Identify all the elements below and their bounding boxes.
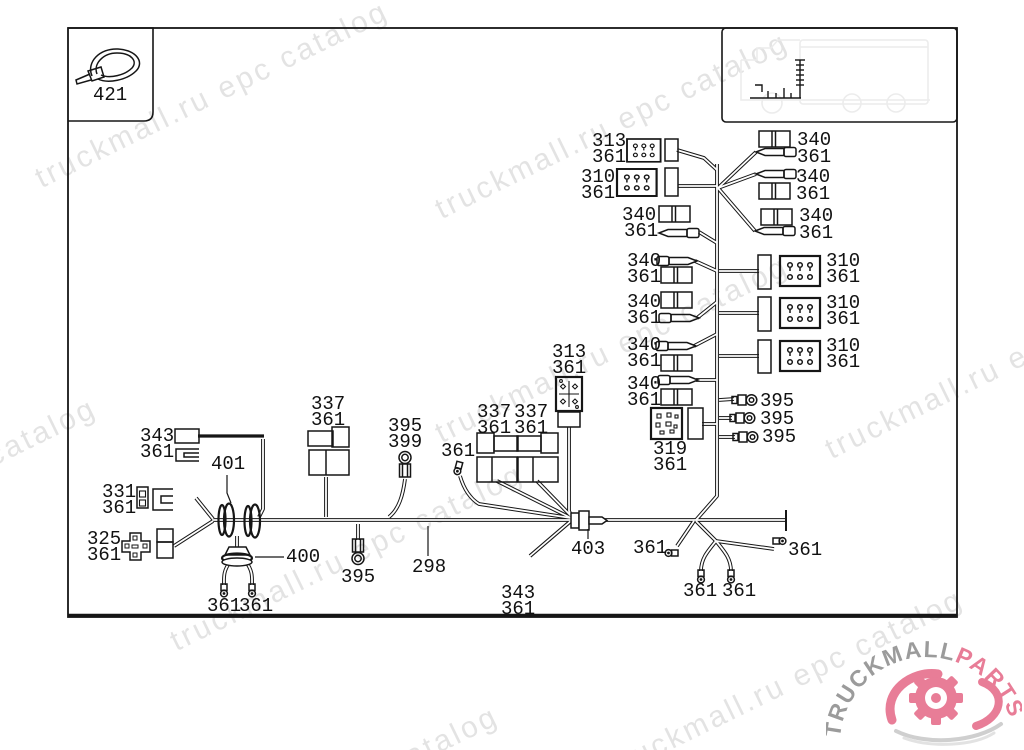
connector-337-left <box>308 427 349 475</box>
connector-340-right-2 <box>756 170 796 200</box>
terminal-361-mid <box>453 461 463 475</box>
ring-terminal-395-2 <box>730 413 755 424</box>
connector-310-right-1 <box>758 255 820 289</box>
truck-outline <box>741 40 930 113</box>
connector-340-right-1 <box>756 131 796 157</box>
connector-343-top <box>175 429 199 461</box>
connector-400 <box>222 547 252 566</box>
bulb-socket-395-bottom <box>352 539 364 565</box>
terminal-361-left <box>665 550 678 557</box>
connector-337-pair-2 <box>517 433 558 482</box>
terminal-361-br-2 <box>728 570 735 583</box>
connector-313-top <box>627 139 678 162</box>
connector-319 <box>651 408 703 439</box>
ring-terminal-395-3 <box>733 432 758 443</box>
connector-340-mid-3 <box>656 342 696 372</box>
terminal-361-br-1 <box>698 570 705 583</box>
leader-lines <box>227 475 588 557</box>
ring-terminal-395-1 <box>732 395 757 406</box>
connector-310-top <box>617 168 678 196</box>
connector-313-mid <box>556 377 582 427</box>
connector-340-top <box>659 206 699 238</box>
connector-337-pair-1 <box>477 433 518 482</box>
connector-310-right-3 <box>758 340 820 373</box>
terminal-361-right <box>773 538 786 545</box>
cable-tie-icon <box>76 49 140 84</box>
connector-403 <box>571 511 607 530</box>
terminal-361-bl-1 <box>221 584 228 597</box>
truckmall-parts-logo: TRUCKMALLPARTS <box>826 636 1022 750</box>
connector-331 <box>137 487 173 510</box>
terminal-361-bl-2 <box>249 584 256 597</box>
connector-310-right-2 <box>758 297 820 331</box>
epc-catalog-page: truckmall.ru epc catalog truckmall.ru ep… <box>0 0 1024 750</box>
bulb-socket-395-399 <box>399 452 411 478</box>
connector-340-right-3 <box>755 209 795 236</box>
connector-340-mid-1 <box>657 257 697 284</box>
harness-location-schematic <box>750 60 805 98</box>
connector-325 <box>122 529 173 560</box>
connector-340-mid-4 <box>658 376 698 406</box>
connector-340-mid-2 <box>659 292 699 323</box>
harness-wires-core <box>174 150 786 585</box>
logo-text-accent: PARTS <box>952 642 1022 721</box>
